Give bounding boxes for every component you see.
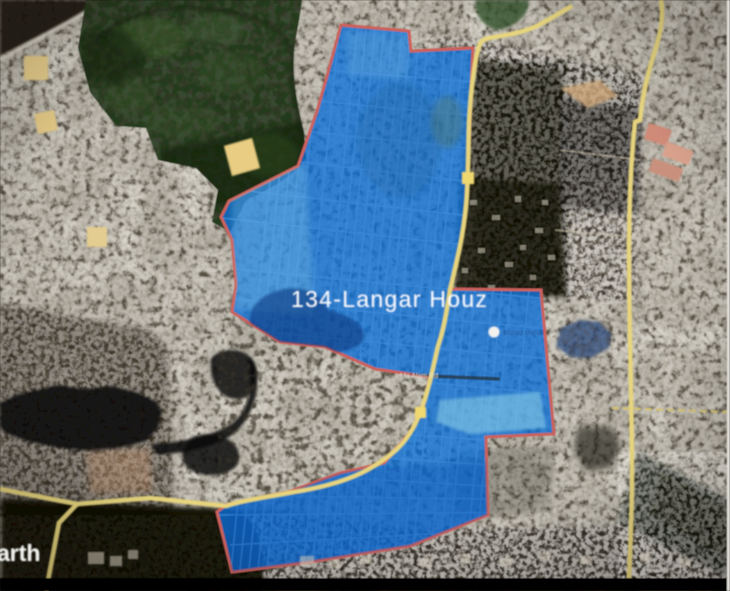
svg-text:Mir Alam Rd: Mir Alam Rd xyxy=(400,373,438,380)
svg-text:134-Langar Houz: 134-Langar Houz xyxy=(291,286,488,312)
svg-text:Murad Mahal: Murad Mahal xyxy=(503,330,544,337)
svg-text:arth: arth xyxy=(0,540,40,566)
